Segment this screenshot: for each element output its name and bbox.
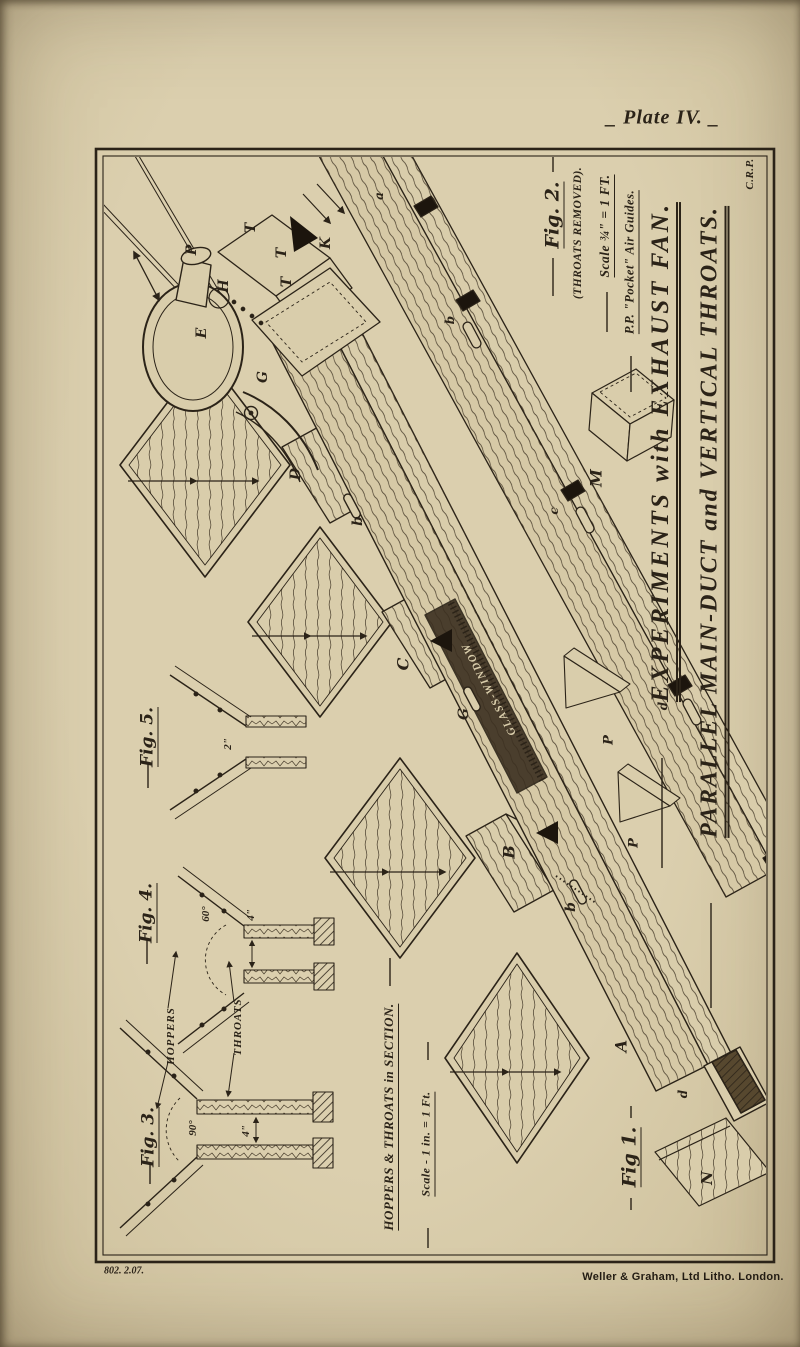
title-experiments: EXPERIMENTS with EXHAUST FAN. xyxy=(647,202,681,702)
throats-callout: THROATS xyxy=(232,998,244,1055)
fig3-dim: 4" xyxy=(240,1125,252,1137)
fig5-dim: 2" xyxy=(222,738,234,750)
plate-title: _ Plate IV. _ xyxy=(606,107,720,130)
fig5-label: Fig. 5. xyxy=(138,707,159,767)
fig2-label: Fig. 2. xyxy=(542,181,565,248)
part-main-duct-m: M xyxy=(587,469,606,487)
part-guide-p2: P xyxy=(627,838,642,848)
printer-credit: Weller & Graham, Ltd Litho. London. xyxy=(582,1271,784,1283)
air-guides-note: P.P. "Pocket" Air Guides. xyxy=(623,190,640,334)
part-fan-inlet: H xyxy=(216,279,232,292)
fig3-label: Fig. 3. xyxy=(139,1107,160,1167)
fig3-angle: 90° xyxy=(187,1120,199,1135)
part-elbow: G xyxy=(255,371,271,383)
part-clamp: G xyxy=(456,708,472,720)
fig4-label: Fig. 4. xyxy=(137,883,158,943)
scanned-plate-page: _ Plate IV. _ 802. 2.07. Weller & Graham… xyxy=(0,0,800,1347)
title-parallel: PARALLEL MAIN-DUCT and VERTICAL THROATS. xyxy=(697,206,730,838)
part-slot-b: b xyxy=(443,316,457,324)
part-loose-board: N xyxy=(698,1171,716,1185)
hoppers-callout: HOPPERS xyxy=(165,1007,177,1065)
fig4-section xyxy=(178,867,334,1053)
fig4-angle: 60° xyxy=(200,906,212,921)
part-box-k: K xyxy=(318,237,334,249)
part-end-cleat: d xyxy=(676,1090,690,1098)
part-slot-a: a xyxy=(372,192,386,200)
part-throat-c: C xyxy=(394,658,413,671)
part-box-t2: T xyxy=(274,248,290,258)
part-end-section: A xyxy=(612,1040,631,1052)
fig4-dim: 4" xyxy=(245,909,257,921)
sections-scale: Scale - 1 in. = 1 Ft. xyxy=(419,1091,436,1196)
part-guide-p1: P xyxy=(602,735,617,745)
part-slot-c: c xyxy=(547,507,561,514)
fig2-note: (THROATS REMOVED). xyxy=(572,167,584,299)
part-fan-outlet: P xyxy=(184,245,200,256)
part-box-t1: T xyxy=(243,223,259,233)
part-box-t3: T xyxy=(279,277,295,287)
part-slot-d: d xyxy=(656,702,670,710)
fig1-label: Fig 1. xyxy=(619,1127,642,1187)
print-code: 802. 2.07. xyxy=(104,1266,144,1277)
part-throat-b: B xyxy=(500,845,519,859)
sections-heading: HOPPERS & THROATS in SECTION. xyxy=(381,1003,399,1230)
fig5-section xyxy=(170,666,306,819)
fig2-scale: Scale ¾" = 1 FT. xyxy=(597,175,615,278)
loose-board xyxy=(655,1118,770,1206)
part-batten1: b xyxy=(350,516,366,526)
part-duct: D xyxy=(288,468,304,480)
artist-initials: C.R.P. xyxy=(744,158,756,189)
part-batten2: b xyxy=(563,902,579,912)
part-fan: E xyxy=(194,328,210,339)
